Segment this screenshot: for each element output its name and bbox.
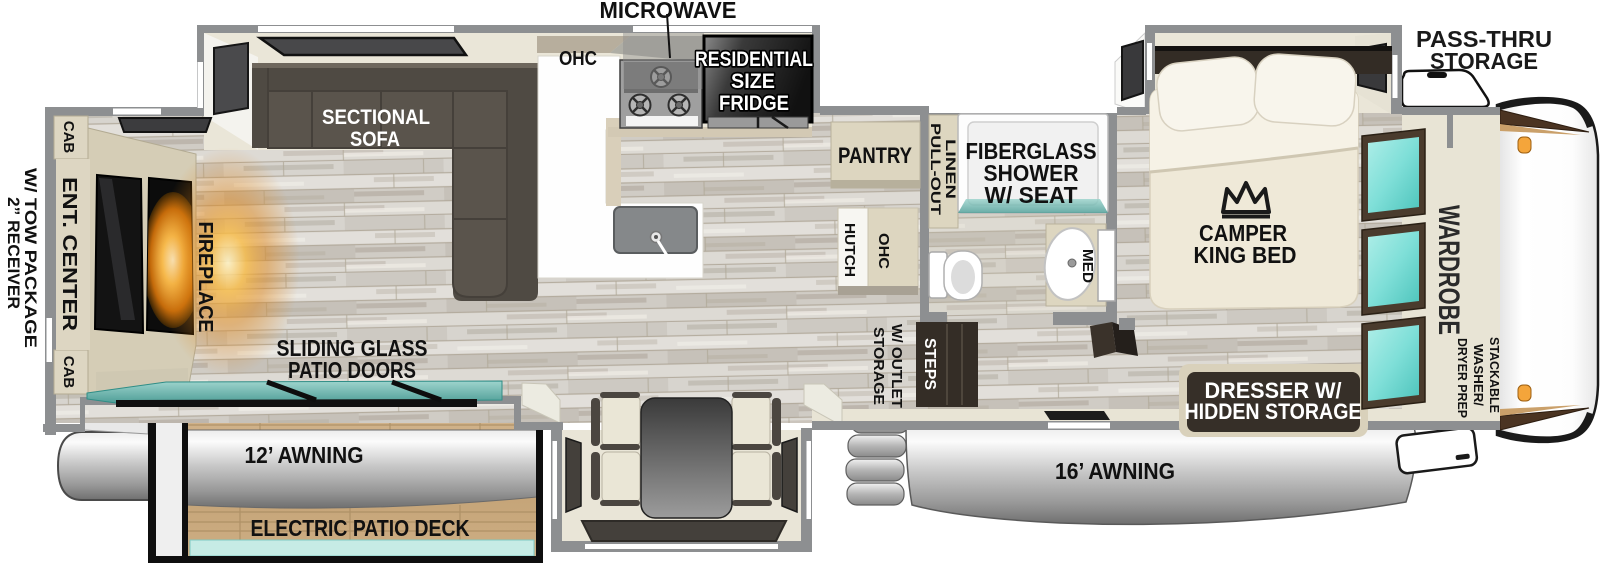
svg-text:RESIDENTIAL: RESIDENTIAL — [695, 48, 813, 71]
svg-text:SIZE: SIZE — [731, 70, 775, 93]
svg-text:SECTIONAL: SECTIONAL — [322, 106, 430, 129]
svg-text:W/ OUTLET: W/ OUTLET — [888, 324, 905, 408]
svg-text:HIDDEN STORAGE: HIDDEN STORAGE — [1185, 399, 1362, 424]
svg-text:PULL-OUT: PULL-OUT — [928, 123, 944, 216]
svg-text:SOFA: SOFA — [350, 128, 400, 151]
svg-text:OHC: OHC — [559, 48, 597, 70]
svg-text:LINEN: LINEN — [943, 139, 959, 199]
svg-text:PANTRY: PANTRY — [838, 143, 912, 168]
svg-text:HUTCH: HUTCH — [841, 223, 858, 277]
svg-text:12’ AWNING: 12’ AWNING — [245, 442, 364, 468]
svg-text:FRIDGE: FRIDGE — [719, 92, 789, 115]
svg-text:ELECTRIC PATIO DECK: ELECTRIC PATIO DECK — [251, 515, 470, 541]
svg-text:W/ SEAT: W/ SEAT — [985, 182, 1078, 208]
svg-text:CAB: CAB — [60, 356, 77, 389]
svg-text:STACKABLE: STACKABLE — [1487, 337, 1502, 413]
svg-text:ENT. CENTER: ENT. CENTER — [58, 177, 80, 332]
svg-text:W/ TOW PACKAGE: W/ TOW PACKAGE — [21, 168, 40, 348]
svg-text:PATIO DOORS: PATIO DOORS — [288, 357, 416, 383]
svg-text:STORAGE: STORAGE — [870, 327, 887, 405]
svg-text:16’ AWNING: 16’ AWNING — [1055, 458, 1175, 484]
svg-text:WASHER/: WASHER/ — [1471, 344, 1486, 406]
svg-text:MED: MED — [1079, 249, 1096, 283]
svg-text:FIREPLACE: FIREPLACE — [194, 222, 216, 333]
svg-text:CAB: CAB — [60, 121, 77, 154]
svg-text:MICROWAVE: MICROWAVE — [600, 0, 737, 23]
svg-text:STORAGE: STORAGE — [1430, 48, 1538, 74]
svg-text:2” RECEIVER: 2” RECEIVER — [4, 197, 23, 309]
svg-text:OHC: OHC — [875, 233, 892, 269]
svg-text:DRYER PREP: DRYER PREP — [1455, 338, 1470, 418]
svg-text:KING BED: KING BED — [1194, 242, 1297, 268]
svg-text:STEPS: STEPS — [921, 338, 938, 390]
svg-text:WARDROBE: WARDROBE — [1432, 205, 1465, 335]
